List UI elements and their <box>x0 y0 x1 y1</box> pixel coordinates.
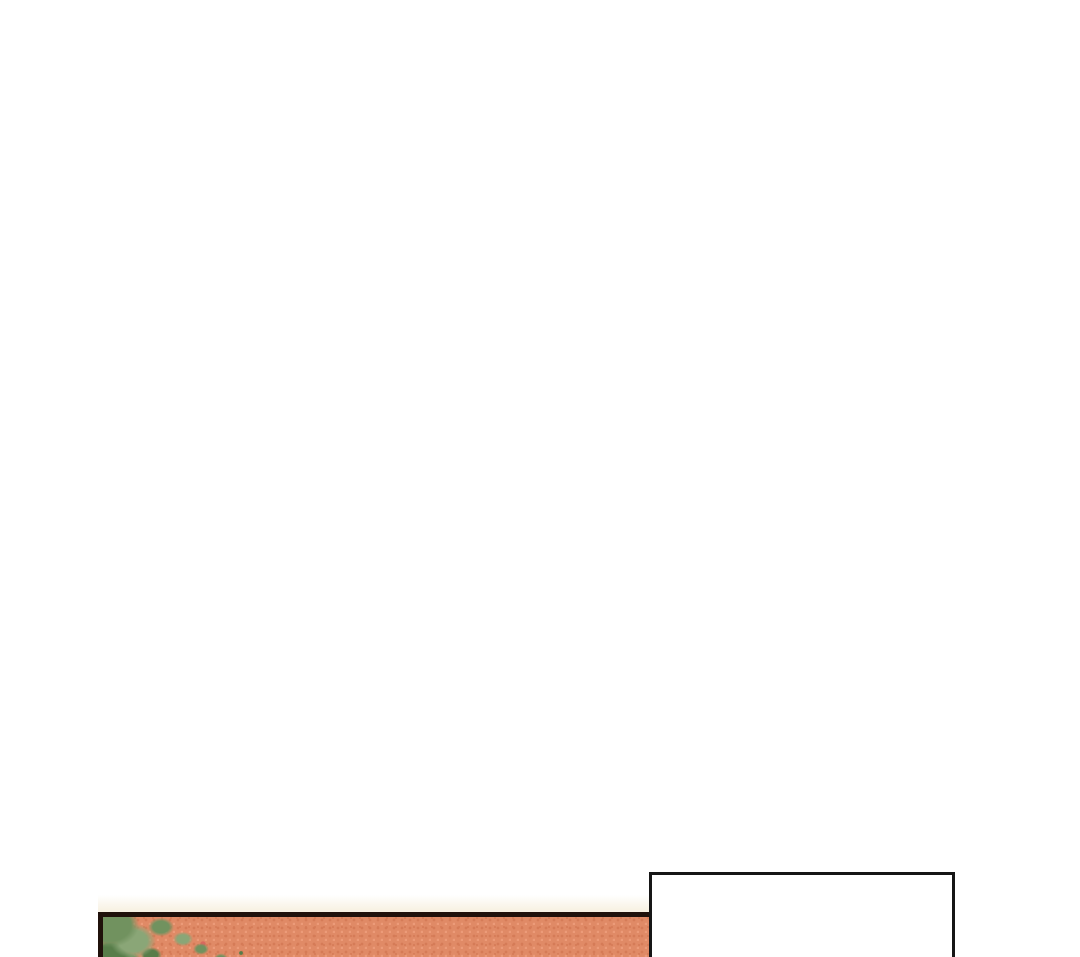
moss-texture-overlay <box>103 917 333 957</box>
comic-panel-empty-white <box>649 872 955 957</box>
comic-panel-textured-orange <box>98 912 653 957</box>
panel-top-glow <box>98 895 653 912</box>
comic-page <box>0 0 1080 957</box>
